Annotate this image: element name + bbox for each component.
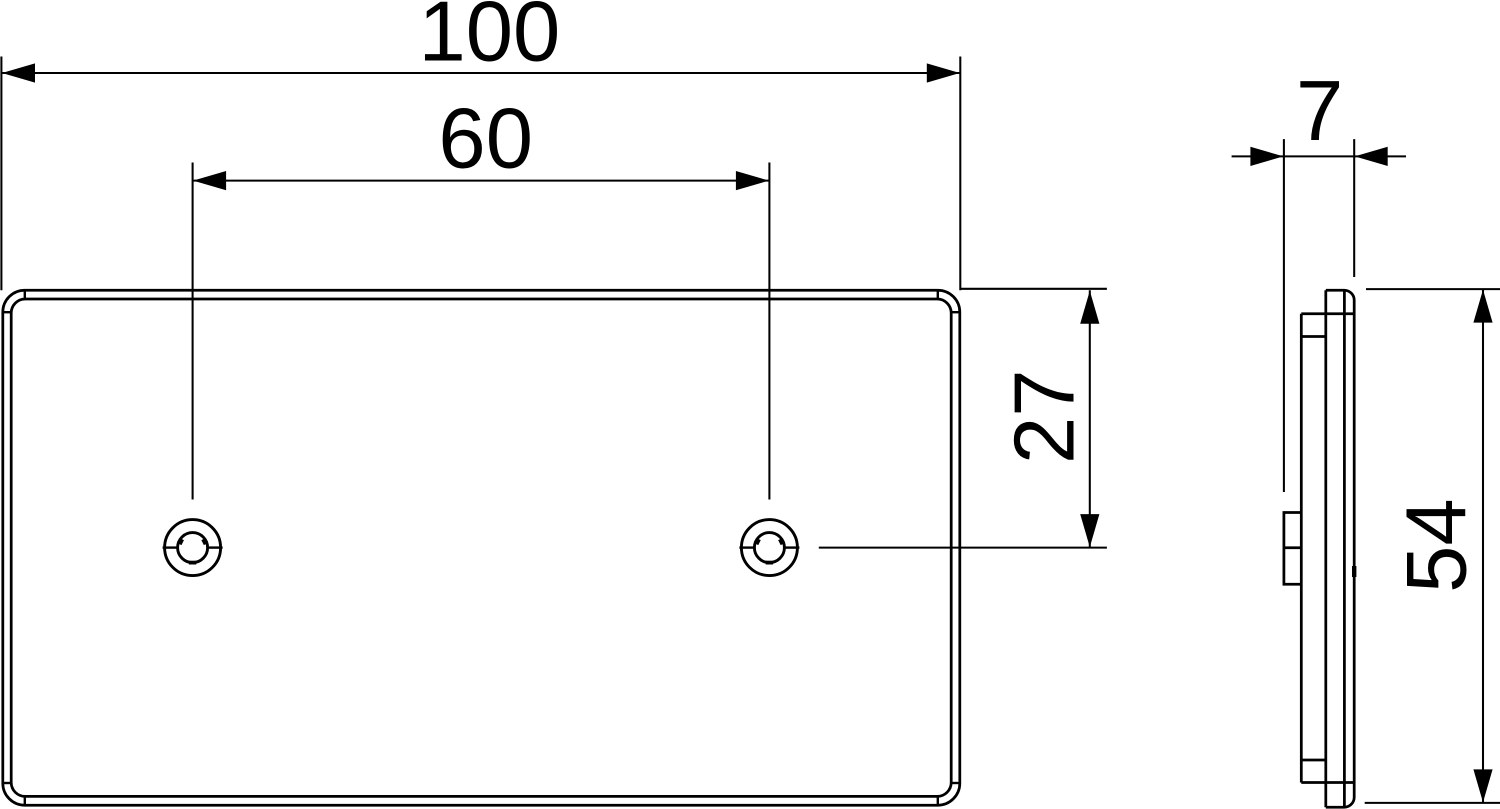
svg-text:27: 27 [998,369,1093,464]
svg-text:100: 100 [418,0,560,80]
svg-text:60: 60 [438,91,533,186]
svg-text:54: 54 [1389,498,1484,593]
svg-text:7: 7 [1296,64,1343,159]
